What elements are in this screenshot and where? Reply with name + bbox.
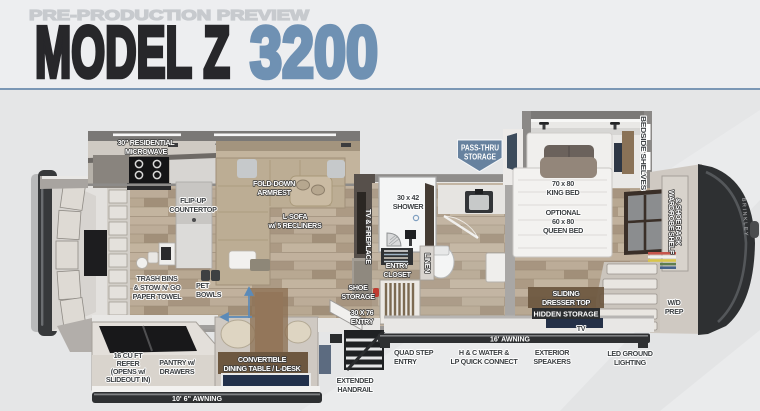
svg-text:16' AWNING: 16' AWNING (490, 335, 530, 344)
svg-text:ENTRY: ENTRY (386, 261, 409, 270)
svg-text:PET: PET (196, 281, 210, 290)
svg-text:ENTRY: ENTRY (394, 357, 417, 366)
svg-text:OPTIONAL: OPTIONAL (546, 208, 582, 217)
svg-text:PAPER TOWEL: PAPER TOWEL (133, 292, 183, 301)
svg-text:H & C WATER &: H & C WATER & (459, 348, 509, 357)
svg-text:QUEEN BED: QUEEN BED (543, 226, 583, 235)
svg-text:DRESSER TOP: DRESSER TOP (542, 298, 591, 307)
svg-text:& STOW N' GO: & STOW N' GO (133, 283, 181, 292)
svg-text:PASS-THRU: PASS-THRU (461, 144, 499, 153)
svg-text:10' 6" AWNING: 10' 6" AWNING (172, 394, 222, 403)
svg-text:DRAWERS: DRAWERS (160, 367, 195, 376)
svg-text:TRASH BINS: TRASH BINS (137, 274, 178, 283)
svg-text:70 x 80: 70 x 80 (552, 179, 574, 188)
svg-text:MICROWAVE: MICROWAVE (125, 147, 167, 156)
svg-text:BOWLS: BOWLS (196, 290, 222, 299)
svg-text:STORAGE: STORAGE (341, 292, 375, 301)
svg-text:SHOWER: SHOWER (393, 202, 425, 211)
svg-text:TV: TV (577, 324, 586, 333)
svg-text:LIGHTING: LIGHTING (614, 358, 647, 367)
svg-text:w/ 5 RECLINERS: w/ 5 RECLINERS (268, 221, 322, 230)
svg-text:COUNTERTOP: COUNTERTOP (169, 205, 217, 214)
svg-text:& SHOE RACK: & SHOE RACK (674, 198, 683, 246)
svg-text:30 X 76: 30 X 76 (351, 308, 374, 317)
svg-text:CLOSET: CLOSET (383, 270, 411, 279)
svg-text:30 x 42: 30 x 42 (397, 193, 419, 202)
svg-text:ARMREST: ARMREST (257, 188, 291, 197)
svg-text:FLIP-UP: FLIP-UP (180, 196, 206, 205)
svg-text:W/D: W/D (667, 298, 680, 307)
svg-text:60 x 80: 60 x 80 (552, 217, 574, 226)
svg-text:BEDSIDE SHELVES: BEDSIDE SHELVES (639, 116, 648, 191)
svg-text:CONVERTIBLE: CONVERTIBLE (238, 355, 287, 364)
svg-text:DINING TABLE / L-DESK: DINING TABLE / L-DESK (223, 364, 301, 373)
svg-text:PREP: PREP (665, 307, 684, 316)
svg-text:SLIDEOUT IN): SLIDEOUT IN) (106, 375, 151, 384)
svg-text:3200: 3200 (250, 13, 378, 93)
svg-text:PANTRY w/: PANTRY w/ (159, 358, 195, 367)
svg-text:SLIDING: SLIDING (552, 289, 580, 298)
svg-text:QUAD STEP: QUAD STEP (394, 348, 434, 357)
svg-text:SPEAKERS: SPEAKERS (533, 357, 571, 366)
svg-text:KING BED: KING BED (547, 188, 580, 197)
svg-text:ENTRY: ENTRY (351, 317, 374, 326)
svg-text:STORAGE: STORAGE (464, 152, 497, 161)
svg-text:LINEN: LINEN (423, 253, 432, 273)
svg-text:HIDDEN STORAGE: HIDDEN STORAGE (534, 310, 599, 319)
svg-text:L-SOFA: L-SOFA (283, 212, 308, 221)
svg-text:30" RESIDENTIAL: 30" RESIDENTIAL (118, 138, 176, 147)
svg-text:LP QUICK CONNECT: LP QUICK CONNECT (451, 357, 519, 366)
svg-text:LED GROUND: LED GROUND (607, 349, 652, 358)
svg-text:HANDRAIL: HANDRAIL (337, 385, 373, 394)
svg-text:EXTENDED: EXTENDED (337, 376, 374, 385)
svg-text:FOLD-DOWN: FOLD-DOWN (253, 179, 295, 188)
svg-text:TV & FIREPLACE: TV & FIREPLACE (364, 209, 373, 264)
svg-text:SHOE: SHOE (348, 283, 368, 292)
svg-text:EXTERIOR: EXTERIOR (535, 348, 570, 357)
svg-text:MODEL Z: MODEL Z (35, 13, 230, 93)
